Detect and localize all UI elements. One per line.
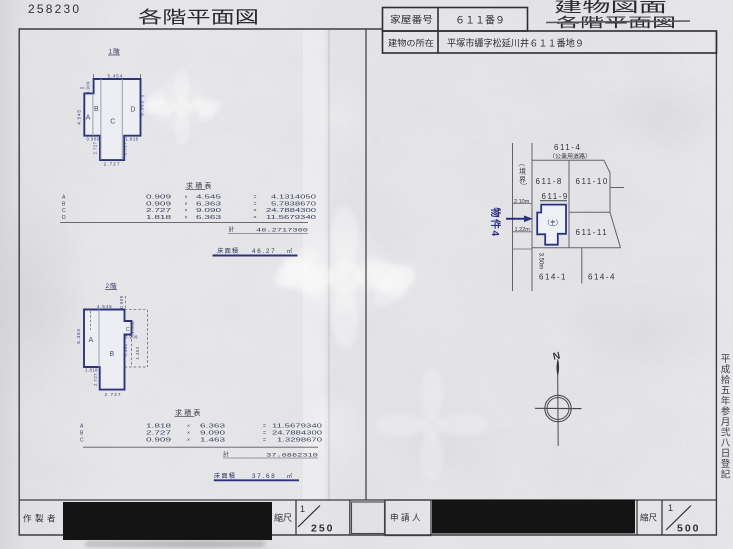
svg-text:2.727: 2.727 bbox=[105, 392, 122, 398]
svg-text:611-4: 611-4 bbox=[554, 143, 581, 152]
svg-text:月: 月 bbox=[721, 417, 731, 428]
svg-text:建物図面: 建物図面 bbox=[554, 0, 667, 15]
svg-text:0.909: 0.909 bbox=[87, 137, 100, 142]
svg-text:計: 計 bbox=[229, 225, 235, 233]
svg-text:37.6862310: 37.6862310 bbox=[266, 452, 318, 458]
svg-text:床面積: 床面積 bbox=[214, 472, 236, 480]
svg-text:日: 日 bbox=[721, 449, 731, 460]
svg-text:1.454: 1.454 bbox=[135, 346, 140, 359]
svg-text:24.7884300: 24.7884300 bbox=[272, 431, 322, 437]
svg-text:B: B bbox=[94, 106, 99, 113]
svg-text:2.727: 2.727 bbox=[93, 373, 98, 386]
svg-text:記: 記 bbox=[721, 469, 731, 481]
svg-text:境: 境 bbox=[519, 167, 526, 176]
svg-text:物件4: 物件4 bbox=[489, 207, 502, 237]
svg-text:24.7884300: 24.7884300 bbox=[266, 208, 316, 214]
svg-text:6.363: 6.363 bbox=[123, 343, 128, 356]
svg-text:A: A bbox=[89, 337, 94, 344]
svg-text:八: 八 bbox=[721, 438, 731, 449]
svg-text:=: = bbox=[263, 423, 266, 429]
svg-text:0.909: 0.909 bbox=[85, 81, 90, 94]
svg-text:611-9: 611-9 bbox=[542, 192, 569, 201]
svg-text:登: 登 bbox=[721, 459, 731, 470]
svg-text:2.727: 2.727 bbox=[93, 141, 98, 154]
svg-text:1: 1 bbox=[668, 503, 673, 513]
svg-text:=: = bbox=[254, 215, 257, 221]
svg-text:5.7838670: 5.7838670 bbox=[271, 201, 316, 207]
svg-text:0.909: 0.909 bbox=[119, 295, 124, 308]
svg-text:申請人: 申請人 bbox=[390, 513, 423, 523]
svg-text:37.68: 37.68 bbox=[252, 473, 276, 480]
svg-text:）: ） bbox=[520, 183, 528, 190]
svg-text:0.909: 0.909 bbox=[146, 201, 171, 207]
svg-text:C: C bbox=[62, 208, 66, 214]
svg-text:4.1314050: 4.1314050 bbox=[271, 195, 316, 201]
svg-text:614-1: 614-1 bbox=[539, 273, 567, 282]
svg-text:床面積: 床面積 bbox=[217, 247, 239, 255]
svg-text:258230: 258230 bbox=[28, 2, 81, 16]
svg-text:参: 参 bbox=[721, 406, 731, 418]
svg-text:11.5679340: 11.5679340 bbox=[266, 215, 316, 221]
svg-text:計: 計 bbox=[223, 450, 229, 458]
svg-text:=: = bbox=[263, 431, 266, 437]
svg-text:成: 成 bbox=[721, 364, 731, 376]
svg-text:弐: 弐 bbox=[721, 427, 731, 439]
svg-text:1.818: 1.818 bbox=[126, 137, 139, 142]
svg-text:縮尺: 縮尺 bbox=[274, 512, 292, 523]
svg-text:A: A bbox=[86, 115, 91, 122]
svg-text:年: 年 bbox=[721, 395, 731, 407]
svg-text:1.818: 1.818 bbox=[146, 423, 171, 429]
svg-text:×: × bbox=[185, 208, 188, 214]
svg-text:=: = bbox=[263, 438, 266, 444]
svg-text:各階平面図: 各階平面図 bbox=[138, 8, 259, 27]
svg-text:拾: 拾 bbox=[721, 374, 731, 386]
svg-text:0.909: 0.909 bbox=[125, 335, 138, 340]
svg-text:500: 500 bbox=[677, 523, 701, 535]
svg-text:C: C bbox=[110, 119, 115, 126]
svg-text:D: D bbox=[62, 215, 66, 221]
svg-text:2.727: 2.727 bbox=[123, 142, 128, 155]
svg-text:2.727: 2.727 bbox=[146, 208, 171, 214]
svg-text:9.090: 9.090 bbox=[200, 431, 225, 437]
svg-text:㎡: ㎡ bbox=[287, 247, 293, 255]
svg-text:D: D bbox=[130, 106, 135, 113]
svg-text:1.463: 1.463 bbox=[200, 438, 225, 444]
svg-text:平塚市纒字松延川井６１１番地９: 平塚市纒字松延川井６１１番地９ bbox=[447, 38, 584, 50]
svg-text:建物の所在: 建物の所在 bbox=[388, 38, 434, 48]
svg-text:2.727: 2.727 bbox=[104, 162, 121, 168]
svg-text:1.22m: 1.22m bbox=[515, 227, 531, 233]
svg-text:5.454: 5.454 bbox=[108, 74, 124, 79]
svg-text:=: = bbox=[254, 208, 257, 214]
svg-text:×: × bbox=[187, 438, 190, 444]
svg-text:C: C bbox=[80, 438, 84, 444]
svg-text:6.363: 6.363 bbox=[196, 215, 221, 221]
svg-text:6.363: 6.363 bbox=[139, 100, 144, 116]
svg-text:11.5679340: 11.5679340 bbox=[272, 423, 322, 429]
svg-text:611-10: 611-10 bbox=[576, 177, 609, 186]
svg-text:3.50m: 3.50m bbox=[538, 253, 544, 270]
svg-text:46.27: 46.27 bbox=[252, 248, 276, 255]
svg-text:求積表: 求積表 bbox=[186, 181, 214, 190]
svg-text:1階: 1階 bbox=[109, 47, 121, 56]
svg-text:６１１番９: ６１１番９ bbox=[455, 15, 505, 27]
svg-text:1.818: 1.818 bbox=[85, 368, 98, 373]
svg-text:614-4: 614-4 bbox=[588, 273, 616, 282]
svg-text:611-11: 611-11 bbox=[576, 228, 609, 237]
svg-text:㎡: ㎡ bbox=[287, 472, 293, 480]
svg-text:6.363: 6.363 bbox=[76, 328, 81, 344]
svg-text:1.3298670: 1.3298670 bbox=[277, 438, 322, 444]
svg-text:2.727: 2.727 bbox=[146, 431, 171, 437]
svg-text:4.545: 4.545 bbox=[97, 304, 113, 309]
svg-text:（公衆用道路）: （公衆用道路） bbox=[549, 153, 591, 161]
svg-text:1.454: 1.454 bbox=[130, 321, 135, 334]
svg-text:家屋番号: 家屋番号 bbox=[390, 14, 433, 26]
svg-text:B: B bbox=[110, 351, 115, 358]
svg-text:1: 1 bbox=[300, 504, 305, 514]
svg-text:0.909: 0.909 bbox=[146, 438, 171, 444]
svg-text:2階: 2階 bbox=[106, 281, 118, 290]
svg-text:（主）: （主） bbox=[544, 219, 562, 227]
svg-text:46.2717360: 46.2717360 bbox=[256, 227, 308, 233]
svg-text:五: 五 bbox=[721, 386, 731, 397]
svg-text:0.909: 0.909 bbox=[146, 195, 171, 201]
svg-text:250: 250 bbox=[311, 523, 335, 535]
svg-text:縮尺: 縮尺 bbox=[640, 513, 658, 523]
svg-text:6.363: 6.363 bbox=[200, 423, 225, 429]
svg-text:=: = bbox=[254, 201, 257, 207]
svg-text:4.545: 4.545 bbox=[77, 109, 82, 125]
svg-text:×: × bbox=[185, 215, 188, 221]
svg-text:611-8: 611-8 bbox=[536, 177, 563, 186]
svg-text:作製者: 作製者 bbox=[23, 514, 59, 524]
svg-text:=: = bbox=[254, 195, 257, 201]
svg-text:2.10m: 2.10m bbox=[514, 199, 530, 205]
svg-text:6.363: 6.363 bbox=[196, 201, 221, 207]
svg-text:×: × bbox=[187, 423, 190, 429]
svg-text:1.818: 1.818 bbox=[146, 215, 171, 221]
svg-text:求積表: 求積表 bbox=[175, 408, 203, 417]
svg-text:×: × bbox=[185, 201, 188, 207]
svg-text:（: （ bbox=[518, 160, 526, 167]
svg-text:×: × bbox=[185, 195, 188, 201]
svg-text:9.090: 9.090 bbox=[196, 208, 221, 214]
svg-text:平: 平 bbox=[721, 354, 731, 365]
svg-text:4.545: 4.545 bbox=[196, 195, 221, 201]
svg-text:×: × bbox=[187, 431, 190, 437]
